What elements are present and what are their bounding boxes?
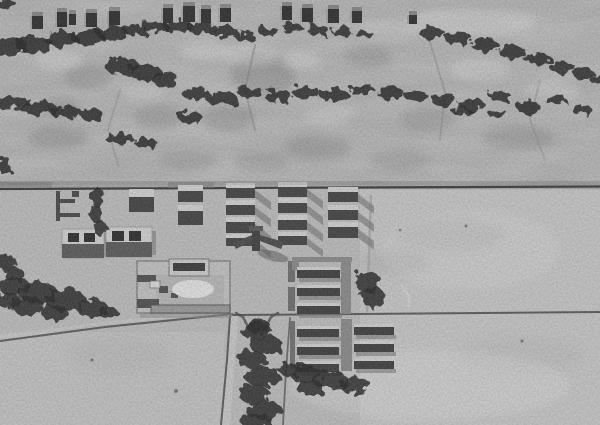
photo-scene-canvas bbox=[0, 0, 600, 425]
aerial-photo-of-planning-model bbox=[0, 0, 600, 425]
film-grain-light bbox=[0, 0, 600, 425]
